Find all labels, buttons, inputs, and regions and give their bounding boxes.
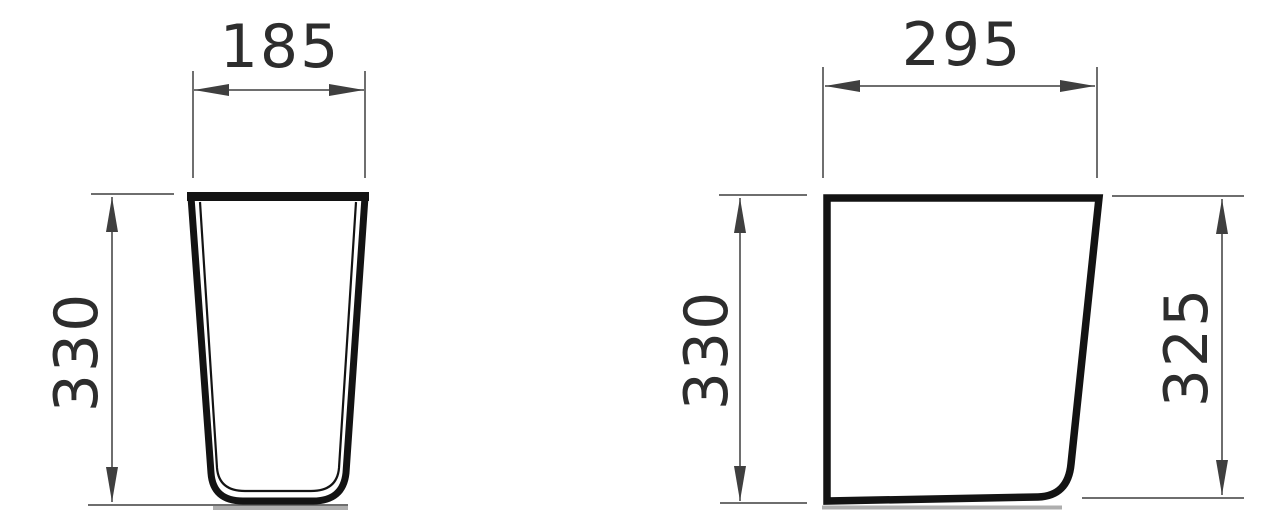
arrowhead-left-icon [825,80,860,92]
front-view: 185 330 [42,12,369,508]
dimension-label-side-width: 295 [902,10,1023,80]
arrowhead-left-icon [194,84,229,96]
dimension-side-height-back: 325 [1082,196,1244,498]
dimension-front-width: 185 [193,12,365,178]
arrowhead-right-icon [329,84,364,96]
arrowhead-bottom-icon [106,467,118,502]
dimension-side-height-front: 330 [672,195,807,503]
arrowhead-top-icon [106,197,118,232]
side-view: 295 330 325 [672,10,1244,508]
dimension-label-front-height: 330 [42,292,112,413]
technical-drawing: 185 330 [0,0,1286,528]
arrowhead-top-icon [734,198,746,233]
arrowhead-right-icon [1060,80,1095,92]
arrowhead-top-icon [1216,199,1228,234]
arrowhead-bottom-icon [734,466,746,501]
side-view-outline [827,198,1099,501]
arrowhead-bottom-icon [1216,460,1228,495]
dimension-label-side-height-back: 325 [1152,287,1222,408]
dimension-side-width: 295 [823,10,1097,178]
drawing-canvas: 185 330 [0,0,1286,528]
dimension-label-side-height-front: 330 [672,290,742,411]
dimension-label-front-width: 185 [220,12,341,82]
